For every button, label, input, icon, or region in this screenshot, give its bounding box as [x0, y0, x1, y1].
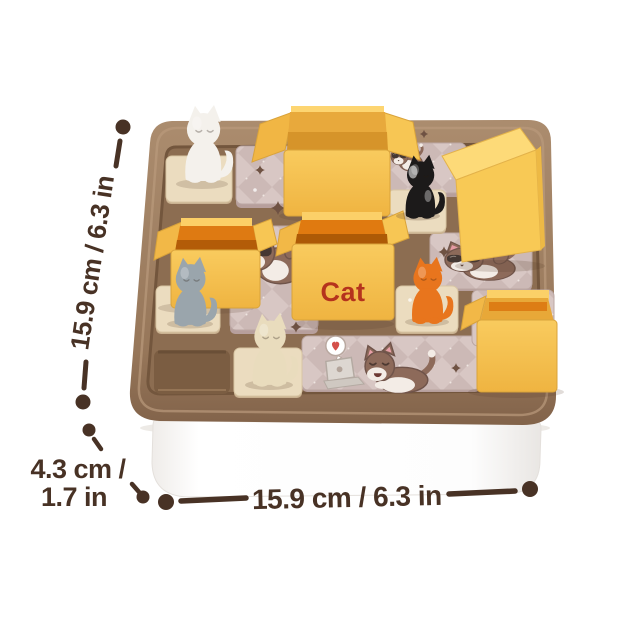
- cat-box-label: Cat: [320, 277, 365, 307]
- left-dimension: 15.9 cm / 6.3 in: [64, 120, 130, 410]
- product-image: Cat 15.9 cm: [0, 0, 630, 630]
- open-box-left: [154, 218, 277, 314]
- empty-cell: [154, 350, 230, 394]
- height-dimension: 4.3 cm / 1.7 in: [30, 424, 149, 513]
- bottom-dimension-label: 15.9 cm / 6.3 in: [252, 480, 442, 515]
- height-dimension-line2: 1.7 in: [41, 482, 107, 512]
- left-dimension-label: 15.9 cm / 6.3 in: [64, 174, 120, 352]
- scene-svg: Cat 15.9 cm: [0, 0, 630, 630]
- height-dimension-line1: 4.3 cm /: [30, 454, 126, 484]
- cat-label-box: Cat: [276, 211, 409, 330]
